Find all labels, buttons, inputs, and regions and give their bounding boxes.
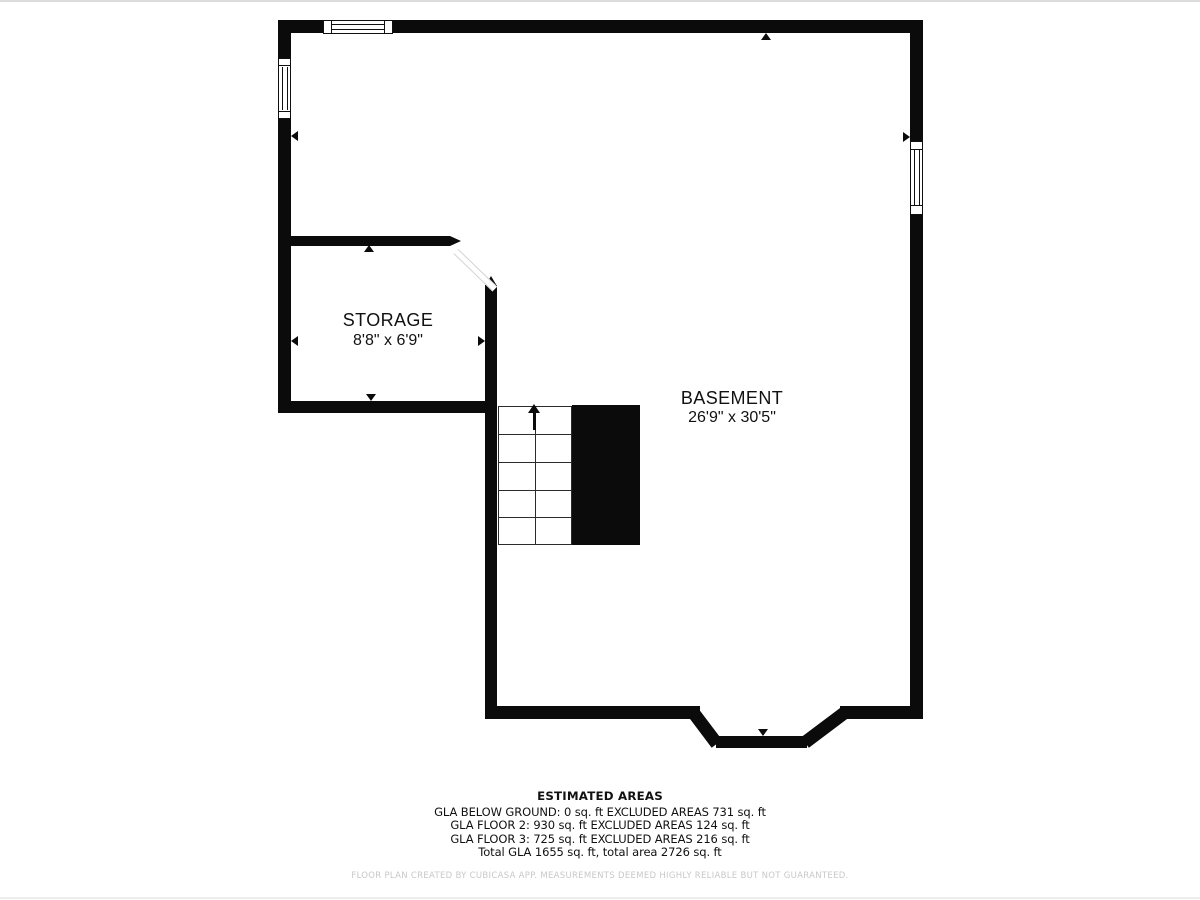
estimated-areas-line-4: Total GLA 1655 sq. ft, total area 2726 s… [0, 845, 1200, 859]
dimension-marker-basement-right-icon [903, 132, 910, 142]
estimated-areas-line-1: GLA BELOW GROUND: 0 sq. ft EXCLUDED AREA… [0, 805, 1200, 819]
dimension-marker-basement-bottom-icon [758, 729, 768, 736]
dimension-marker-storage-right-icon [478, 336, 485, 346]
estimated-areas-title: ESTIMATED AREAS [0, 789, 1200, 803]
window-glass [914, 150, 920, 206]
dimension-marker-basement-left-icon [291, 131, 298, 141]
estimated-areas-line-3: GLA FLOOR 3: 725 sq. ft EXCLUDED AREAS 2… [0, 832, 1200, 846]
window-frame-line [279, 111, 290, 112]
wall-end-cap-icon [450, 236, 461, 246]
wall-stairwell [485, 285, 497, 719]
window-right-icon [910, 141, 923, 215]
floor-plan-canvas: STORAGE 8'8" x 6'9" BASEMENT 26'9" x 30'… [0, 0, 1200, 900]
wall-bottom-right [840, 706, 923, 719]
window-top-icon [323, 20, 393, 34]
room-dimensions-basement: 26'9" x 30'5" [652, 409, 812, 427]
wall-bottom-left [485, 706, 700, 719]
page-top-edge [0, 0, 1200, 2]
door-swing-icon [454, 249, 498, 292]
wall-right [910, 20, 923, 719]
disclaimer-text: FLOOR PLAN CREATED BY CUBICASA APP. MEAS… [0, 871, 1200, 881]
wall-bay-bottom [716, 736, 807, 748]
window-frame-line [279, 65, 290, 66]
room-dimensions-storage: 8'8" x 6'9" [308, 332, 468, 350]
dimension-marker-basement-top-icon [761, 33, 771, 40]
page-bottom-edge [0, 897, 1200, 899]
room-label-basement: BASEMENT [652, 388, 812, 409]
stairs-up-arrow-icon [528, 404, 540, 413]
dimension-marker-storage-left-icon [291, 336, 298, 346]
dimension-marker-storage-top-icon [364, 245, 374, 252]
under-stair-block [572, 405, 640, 545]
window-glass [332, 24, 384, 30]
wall-storage-bottom [278, 401, 497, 413]
estimated-areas-line-2: GLA FLOOR 2: 930 sq. ft EXCLUDED AREAS 1… [0, 818, 1200, 832]
room-label-storage: STORAGE [308, 310, 468, 331]
stairs-up-arrow-shaft [533, 412, 536, 430]
dimension-marker-storage-bottom-icon [366, 394, 376, 401]
window-glass [282, 67, 288, 110]
window-left-icon [278, 58, 291, 119]
